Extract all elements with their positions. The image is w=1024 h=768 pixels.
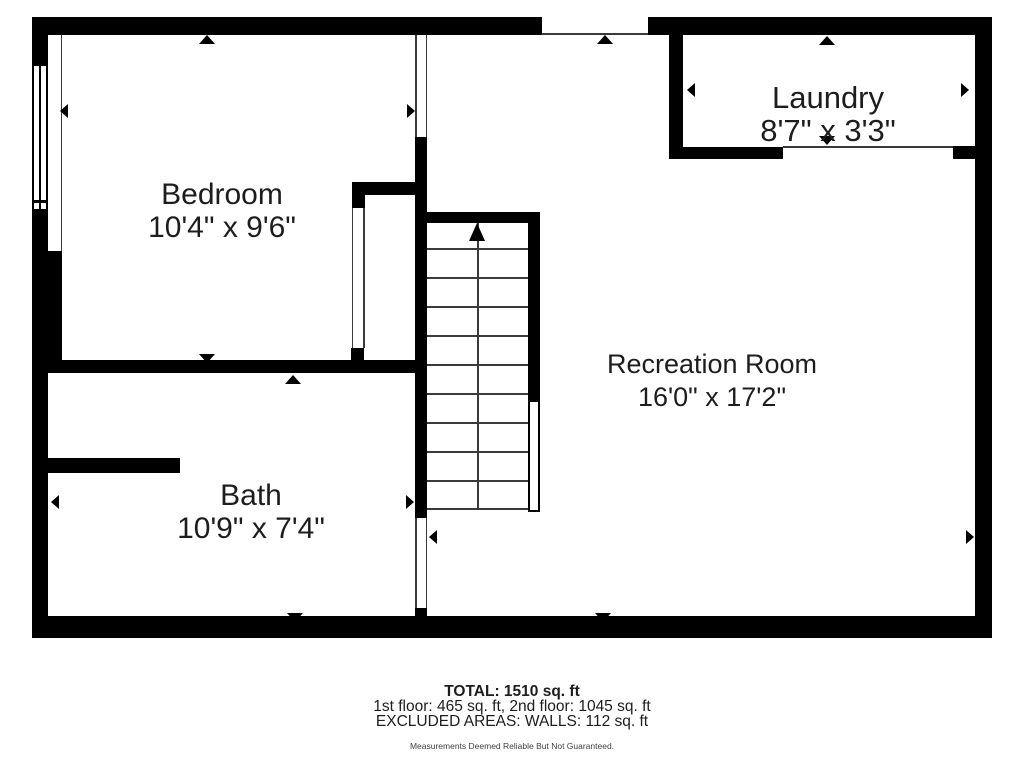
floor-plan: Bedroom 10'4" x 9'6" Laundry 8'7" x 3'3"… [0, 0, 1024, 768]
stairs-center-line [477, 223, 479, 510]
bath-dimension-arrow-down-icon [287, 613, 303, 622]
recreation-dimension-arrow-left-icon [429, 530, 437, 544]
window-sill-line [32, 200, 48, 203]
bath-partition-wall [44, 458, 180, 473]
outer-wall-top-right [648, 17, 992, 35]
bedroom-east-wall-stub [415, 608, 427, 638]
area-summary: TOTAL: 1510 sq. ft 1st floor: 465 sq. ft… [0, 684, 1024, 754]
bath-dimension-arrow-left-icon [51, 495, 59, 509]
summary-disclaimer: Measurements Deemed Reliable But Not Gua… [0, 739, 1024, 754]
bedroom-dimension-arrow-down-icon [199, 354, 215, 363]
room-label-bath: Bath 10'9" x 7'4" [177, 479, 325, 545]
room-name: Bedroom [148, 178, 296, 211]
stairs-direction-up-arrow-icon [469, 223, 485, 241]
hall-doorway-line [415, 518, 417, 608]
wall-recess-line [61, 35, 63, 251]
stairs-railing [528, 400, 540, 512]
bedroom-dimension-arrow-left-icon [60, 104, 68, 118]
recreation-dimension-arrow-up-icon [597, 35, 613, 44]
laundry-dimension-arrow-left-icon [687, 83, 695, 97]
closet-stub-bottom [351, 348, 364, 361]
laundry-south-wall-left [669, 147, 783, 159]
window-pane-line [46, 63, 48, 212]
room-dims: 16'0" x 17'2" [607, 381, 817, 414]
window-symbol [32, 63, 48, 212]
recreation-dimension-arrow-down-icon [595, 613, 611, 622]
room-label-laundry: Laundry 8'7" x 3'3" [760, 81, 896, 147]
room-name: Laundry [760, 81, 896, 114]
window-pane-line [32, 63, 34, 212]
exterior-opening-line [542, 33, 648, 35]
bedroom-dimension-arrow-right-icon [407, 104, 415, 118]
stairs-north-wall [427, 212, 540, 223]
bedroom-doorway-line [426, 35, 428, 137]
closet-opening-line [352, 208, 354, 348]
summary-total: TOTAL: 1510 sq. ft [0, 684, 1024, 699]
outer-wall-top-left [32, 17, 542, 35]
window-frame-line [32, 209, 48, 212]
window-pane-line [39, 63, 41, 212]
closet-stub-top [352, 195, 365, 208]
outer-wall-right [975, 17, 992, 638]
bedroom-south-wall [48, 360, 427, 373]
summary-floors: 1st floor: 465 sq. ft, 2nd floor: 1045 s… [0, 699, 1024, 714]
laundry-west-wall [669, 35, 683, 147]
stairs [427, 223, 528, 510]
closet-opening-line [363, 208, 365, 348]
outer-wall-left-lower [32, 212, 48, 638]
room-dims: 10'4" x 9'6" [148, 211, 296, 244]
stairs-east-wall [528, 212, 540, 400]
room-dims: 10'9" x 7'4" [177, 512, 325, 545]
room-label-recreation: Recreation Room 16'0" x 17'2" [607, 348, 817, 414]
room-name: Recreation Room [607, 348, 817, 381]
bath-dimension-arrow-up-icon [285, 375, 301, 384]
recreation-dimension-arrow-right-icon [966, 530, 974, 544]
room-label-bedroom: Bedroom 10'4" x 9'6" [148, 178, 296, 244]
room-name: Bath [177, 479, 325, 512]
outer-wall-bottom [32, 616, 992, 638]
hall-doorway-line [426, 518, 428, 608]
laundry-dimension-arrow-up-icon [819, 36, 835, 45]
outer-wall-left-upper [32, 17, 48, 63]
bedroom-doorway-line [415, 35, 417, 137]
inner-wall-left [48, 251, 62, 373]
summary-excluded: EXCLUDED AREAS: WALLS: 112 sq. ft [0, 714, 1024, 729]
room-dims: 8'7" x 3'3" [760, 114, 896, 147]
laundry-dimension-arrow-right-icon [961, 83, 969, 97]
bath-dimension-arrow-right-icon [406, 495, 414, 509]
bedroom-dimension-arrow-up-icon [199, 35, 215, 44]
closet-north-wall [352, 182, 427, 195]
laundry-south-wall-right [953, 146, 975, 159]
